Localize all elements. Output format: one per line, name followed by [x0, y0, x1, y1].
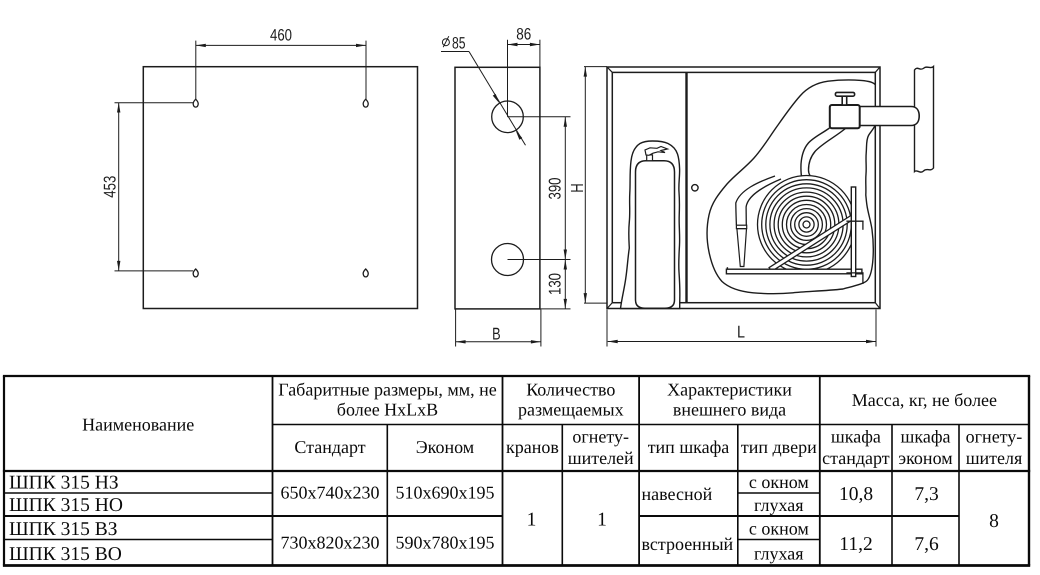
svg-text:11,2: 11,2 [839, 534, 872, 555]
svg-text:внешнего вида: внешнего вида [673, 400, 786, 420]
svg-text:глухая: глухая [754, 495, 803, 515]
svg-text:глухая: глухая [754, 544, 803, 564]
svg-text:1: 1 [597, 510, 607, 531]
svg-text:85: 85 [452, 34, 466, 52]
svg-text:ШПК 315 ВО: ШПК 315 ВО [9, 544, 122, 565]
svg-text:Габаритные размеры, мм, не: Габаритные размеры, мм, не [278, 380, 497, 400]
svg-text:H: H [567, 183, 587, 193]
svg-text:размещаемых: размещаемых [518, 400, 624, 420]
svg-text:тип двери: тип двери [741, 437, 817, 457]
svg-text:1: 1 [527, 510, 537, 531]
svg-text:730х820х230: 730х820х230 [281, 533, 380, 553]
svg-text:шкафа: шкафа [901, 427, 951, 447]
svg-text:навесной: навесной [642, 484, 713, 504]
svg-text:7,6: 7,6 [914, 534, 939, 555]
svg-text:7,3: 7,3 [914, 484, 938, 505]
svg-text:шителя: шителя [966, 448, 1023, 468]
svg-text:390: 390 [545, 178, 564, 200]
svg-text:Характеристики: Характеристики [667, 380, 792, 400]
svg-text:тип шкафа: тип шкафа [648, 437, 730, 457]
svg-text:453: 453 [100, 176, 119, 198]
svg-text:Масса, кг, не более: Масса, кг, не более [852, 390, 997, 410]
svg-text:Эконом: Эконом [416, 437, 474, 457]
svg-text:шителей: шителей [568, 448, 634, 468]
svg-text:ШПК 315 ВЗ: ШПК 315 ВЗ [9, 519, 118, 540]
svg-text:460: 460 [270, 27, 292, 45]
svg-text:встроенный: встроенный [642, 534, 734, 554]
svg-text:Наименование: Наименование [82, 414, 194, 434]
svg-text:огнету-: огнету- [966, 427, 1023, 447]
svg-text:стандарт: стандарт [822, 448, 890, 468]
svg-text:с окном: с окном [749, 519, 809, 539]
svg-text:ШПК 315 НО: ШПК 315 НО [9, 495, 123, 516]
svg-text:130: 130 [545, 273, 564, 295]
svg-text:огнету-: огнету- [572, 427, 629, 447]
svg-text:Количество: Количество [526, 380, 615, 400]
svg-text:590х780х195: 590х780х195 [396, 533, 495, 553]
svg-text:более НхLхВ: более НхLхВ [337, 400, 438, 420]
svg-text:с окном: с окном [749, 472, 809, 492]
svg-text:86: 86 [516, 26, 531, 44]
svg-text:L: L [737, 323, 745, 342]
svg-text:кранов: кранов [506, 437, 559, 457]
svg-text:ШПК 315 НЗ: ШПК 315 НЗ [9, 473, 119, 494]
svg-text:B: B [492, 325, 501, 344]
svg-text:8: 8 [989, 511, 999, 532]
svg-text:510х690х195: 510х690х195 [396, 483, 495, 503]
svg-text:шкафа: шкафа [831, 427, 881, 447]
svg-text:эконом: эконом [898, 448, 952, 468]
svg-text:Стандарт: Стандарт [294, 437, 365, 457]
svg-text:10,8: 10,8 [839, 484, 873, 505]
svg-text:650х740х230: 650х740х230 [281, 483, 380, 503]
